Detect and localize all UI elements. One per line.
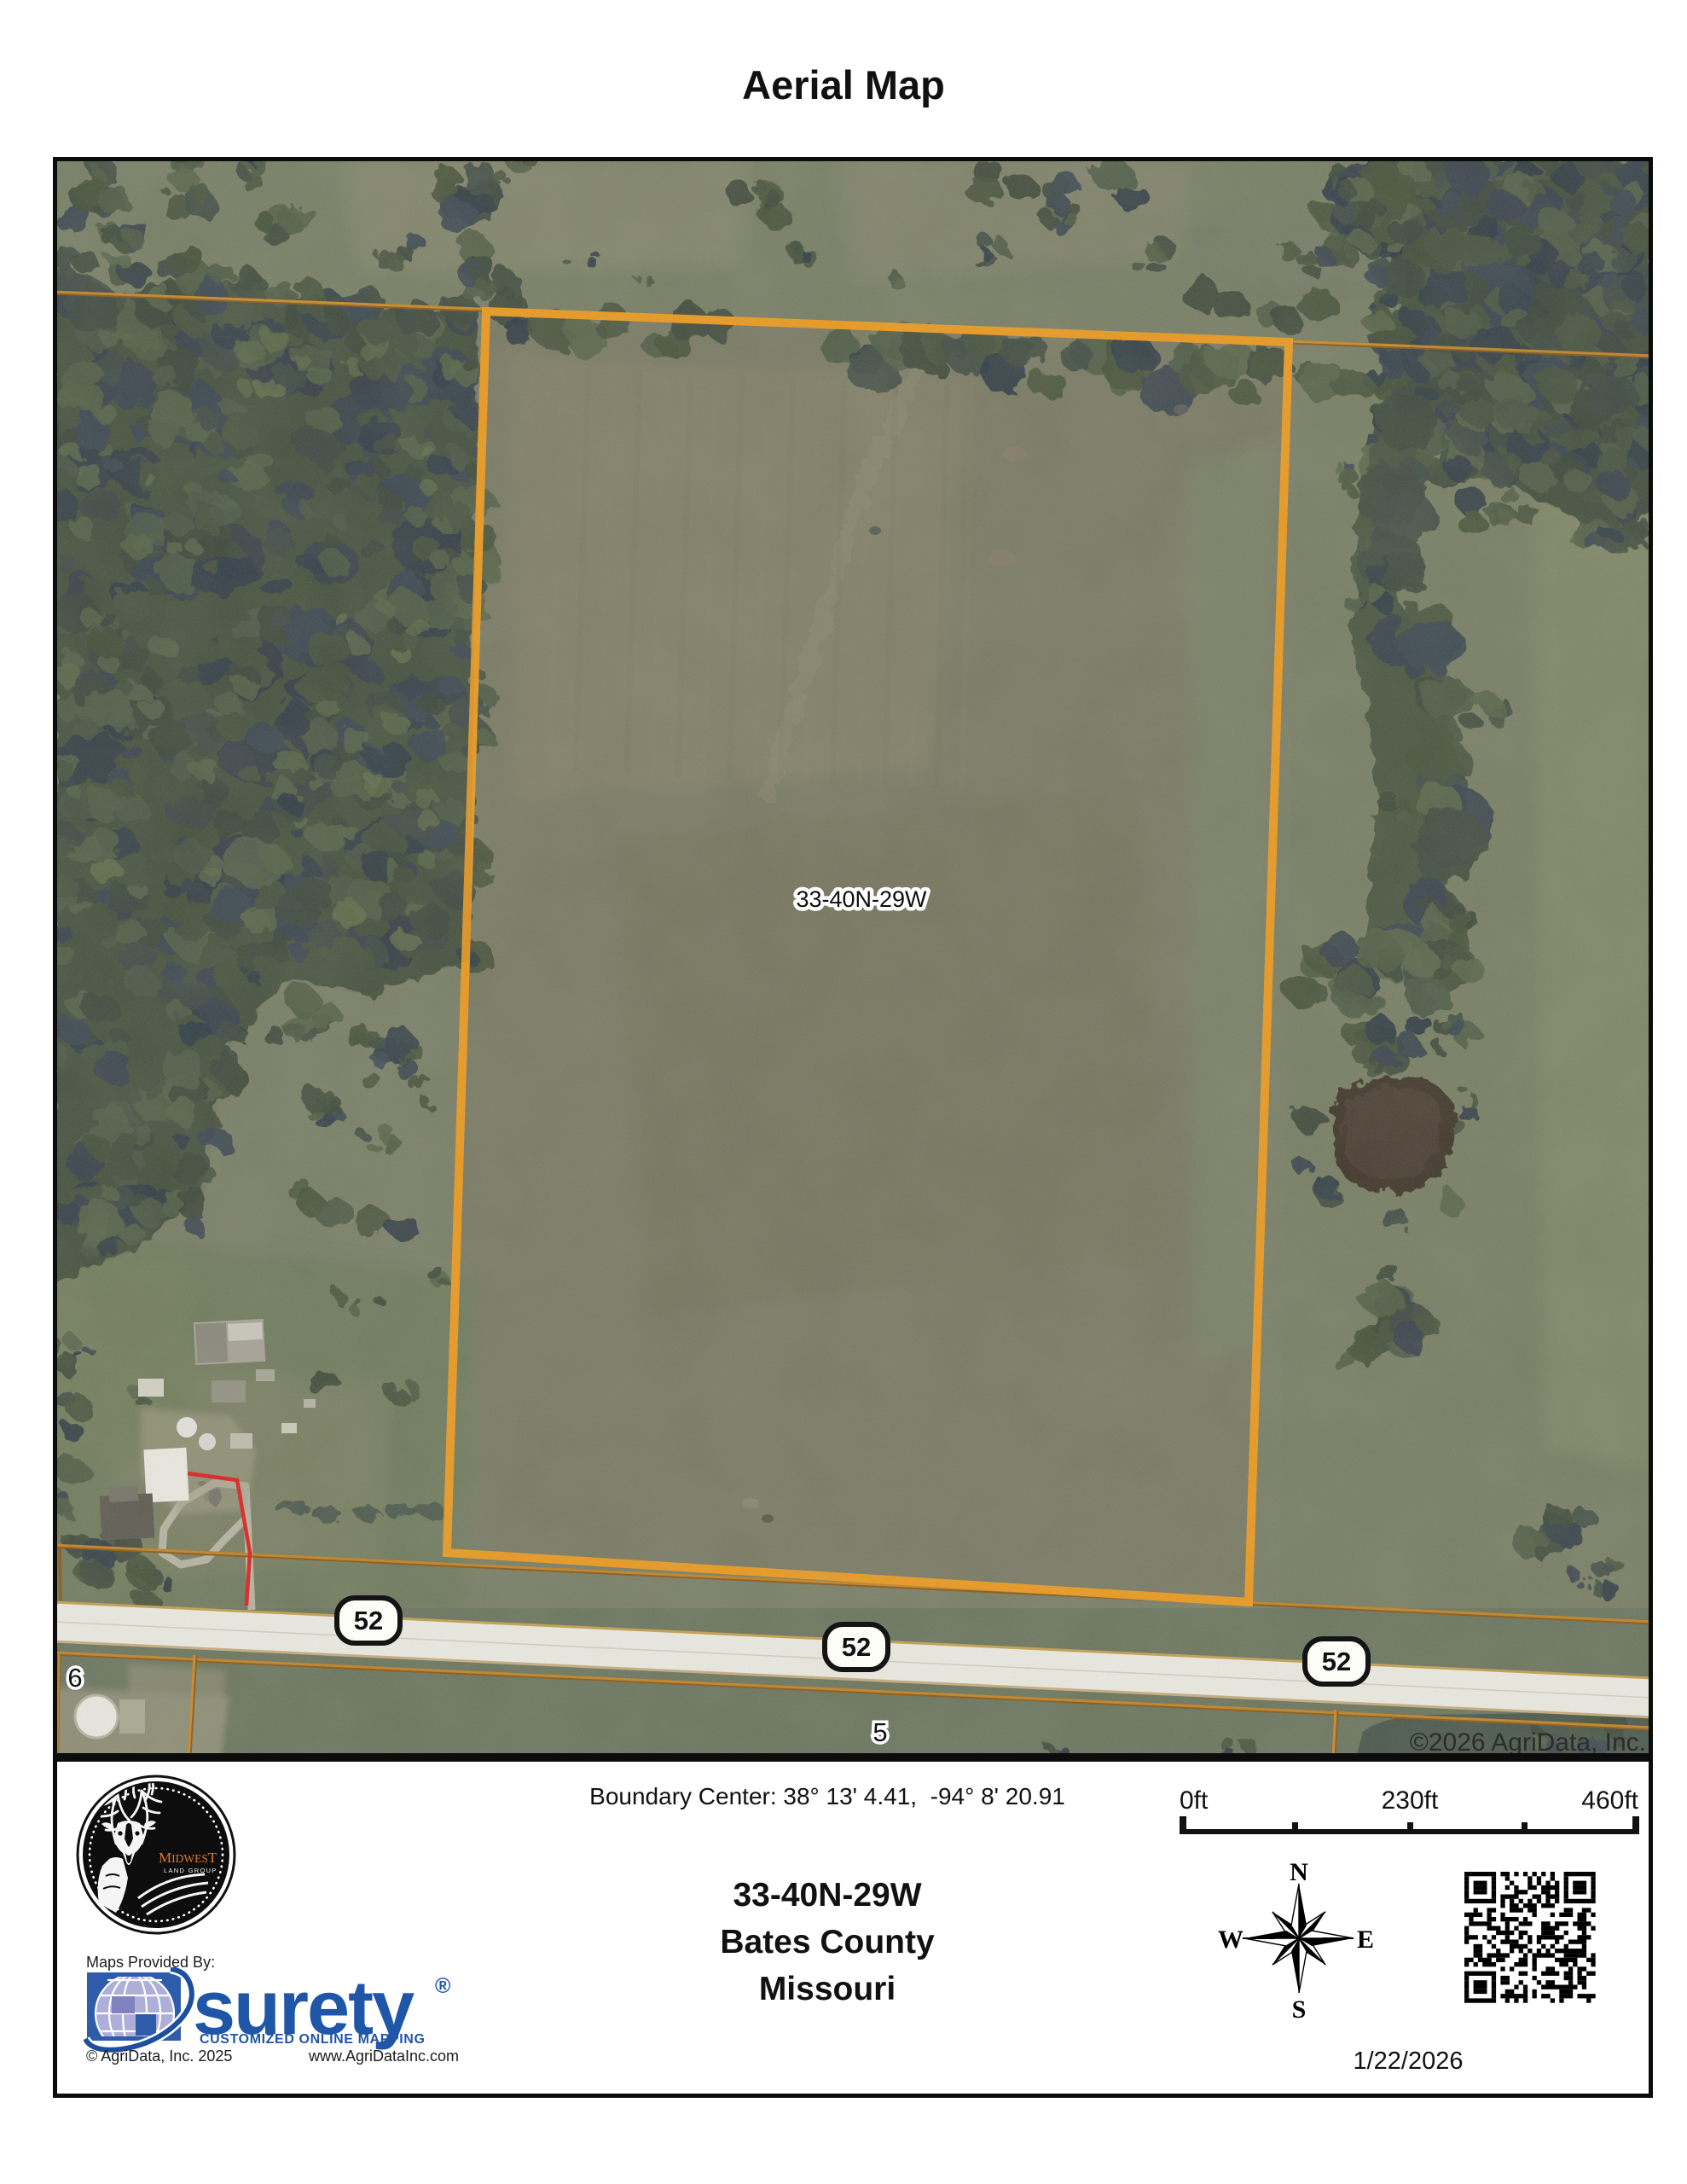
svg-text:®: ® <box>435 1974 451 1998</box>
svg-text:E: E <box>1357 1926 1374 1954</box>
svg-text:S: S <box>1292 1995 1307 2024</box>
svg-text:W: W <box>1218 1926 1244 1954</box>
svg-text:MIDWEST: MIDWEST <box>159 1850 217 1866</box>
svg-text:52: 52 <box>1322 1647 1351 1676</box>
svg-text:6: 6 <box>67 1663 82 1693</box>
svg-text:5: 5 <box>872 1717 887 1747</box>
svg-text:52: 52 <box>842 1632 871 1662</box>
svg-text:0ft: 0ft <box>1180 1786 1209 1815</box>
svg-text:CUSTOMIZED ONLINE MAPPING: CUSTOMIZED ONLINE MAPPING <box>200 2032 426 2047</box>
svg-text:230ft: 230ft <box>1382 1786 1439 1815</box>
svg-text:LAND GROUP: LAND GROUP <box>164 1867 217 1874</box>
svg-text:N: N <box>1290 1858 1308 1886</box>
svg-text:©2026 AgriData, Inc.: ©2026 AgriData, Inc. <box>1410 1728 1646 1757</box>
svg-text:52: 52 <box>354 1606 383 1635</box>
svg-text:33-40N-29W: 33-40N-29W <box>796 886 927 912</box>
svg-text:460ft: 460ft <box>1581 1786 1638 1815</box>
